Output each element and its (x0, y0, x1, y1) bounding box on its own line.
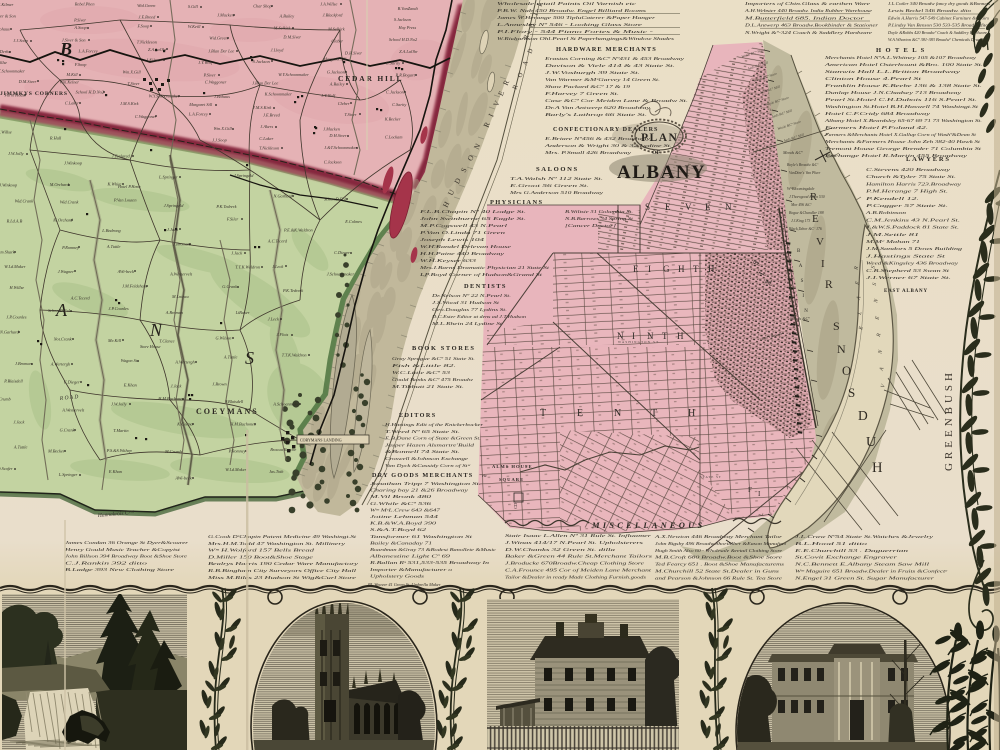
svg-text:P.Cagger 57 State St.: P.Cagger 57 State St. (864, 203, 948, 208)
svg-text:H.Hastings Edit of the Knicker: H.Hastings Edit of the Knickerbocker (384, 422, 484, 427)
svg-text:T: T (651, 408, 657, 419)
svg-text:Shaw Packard &Cº 17 & 19: Shaw Packard &Cº 17 & 19 (545, 84, 631, 89)
svg-text:Store House: Store House (140, 344, 161, 349)
svg-text:Rebel.Phen: Rebel.Phen (74, 1, 95, 6)
svg-text:J.Hastings State St: J.Hastings State St (866, 253, 947, 258)
svg-text:D.M.Siver: D.M.Siver (18, 79, 37, 84)
svg-text:[Cancer Doctor]: [Cancer Doctor] (565, 223, 616, 228)
svg-text:EAST ALBANY: EAST ALBANY (884, 289, 928, 294)
svg-text:F.Siler: F.Siler (226, 217, 239, 222)
svg-text:M.Tibbutt 21 State St.: M.Tibbutt 21 State St. (390, 384, 464, 389)
svg-text:Lewis Beckel 546 Broadw. dit: Lewis Beckel 546 Broadw. dito (886, 8, 972, 13)
svg-text:Cleber: Cleber (331, 39, 343, 44)
svg-text:A.C.Tecerd: A.C.Tecerd (267, 239, 288, 244)
svg-text:F.L.B.Chapin Nº 40 Lodge St.: F.L.B.Chapin Nº 40 Lodge St. (418, 209, 526, 214)
svg-text:D.Miller 150 Boot&Shoe Stage: D.Miller 150 Boot&Shoe Stage (206, 554, 313, 559)
svg-text:C.Dieger: C.Dieger (334, 250, 350, 255)
svg-text:J.E.Breed: J.E.Breed (263, 113, 281, 118)
svg-text:P.Romney: P.Romney (61, 245, 79, 250)
svg-text:K.Becker: K.Becker (384, 117, 401, 122)
svg-text:G.Cook DʳChapin Patent Medici: G.Cook DʳChapin Patent Medicine 49 Washi… (208, 534, 357, 539)
svg-text:J.Wagner: J.Wagner (58, 269, 75, 274)
svg-text:J.Y.Wolf: J.Y.Wolf (321, 93, 336, 98)
svg-text:C.J.Rankin 392 ditto: C.J.Rankin 392 ditto (65, 560, 149, 565)
svg-text:M.Churchill 52 State St.Deale: M.Churchill 52 State St.Dealer in Guns (653, 569, 779, 574)
svg-text:E: E (705, 202, 711, 212)
svg-text:F.Soop: F.Soop (137, 23, 151, 28)
svg-text:G.Crank: G.Crank (60, 427, 75, 432)
svg-text:P.K.Tedrerk: P.K.Tedrerk (215, 204, 236, 209)
svg-text:J.Leck: J.Leck (268, 317, 279, 322)
svg-text:Bealrys Harris 190 Cedar War: Bealrys Harris 190 Cedar Ware Manufactor… (208, 561, 358, 566)
svg-text:T.Siver: T.Siver (345, 112, 357, 117)
svg-text:W.H.Keyser 633: W.H.Keyser 633 (420, 258, 477, 263)
svg-text:M.Crumb: M.Crumb (0, 397, 11, 402)
svg-text:A.Soop: A.Soop (73, 25, 87, 30)
svg-text:Wᵐ H.Wolford 157 Bells Bread: Wᵐ H.Wolford 157 Bells Bread (208, 548, 316, 553)
svg-text:J.P.Counles: J.P.Counles (109, 306, 130, 311)
svg-text:A: A (799, 264, 803, 269)
svg-text:C.Sarity: C.Sarity (392, 102, 406, 107)
svg-text:C.Waggoner: C.Waggoner (205, 80, 227, 85)
svg-text:P.Siver: P.Siver (203, 72, 216, 77)
svg-text:Case &Cº Cor Meiden Lane &: Case &Cº Cor Meiden Lane & Broadw St. (545, 98, 688, 103)
svg-text:A.B.Robinson: A.B.Robinson (864, 210, 907, 215)
svg-text:P.S.&S.Withep: P.S.&S.Withep (106, 448, 133, 453)
svg-text:N: N (837, 342, 846, 356)
svg-text:Wagon St: Wagon St (121, 358, 138, 363)
svg-text:M.B.Croft 680 Broadw.Boot &Sho: M.B.Croft 680 Broadw.Boot &Shoe Store (653, 555, 782, 560)
svg-text:CONFECTIONARY DEALERS: CONFECTIONARY DEALERS (553, 127, 658, 133)
svg-text:Wᵐ Maguire 651 Broadw.Dealer i: Wᵐ Maguire 651 Broadw.Dealer in Fruits &… (795, 569, 948, 574)
svg-text:T.Nickleson: T.Nickleson (137, 39, 157, 44)
svg-text:P.Blaisdell: P.Blaisdell (224, 399, 244, 404)
svg-text:J.Blan Der Lee: J.Blan Der Lee (208, 49, 234, 54)
svg-text:ALMS HOUSE: ALMS HOUSE (492, 464, 533, 469)
svg-text:B.VanZandt: B.VanZandt (398, 6, 419, 11)
svg-text:J.S.Wood 31 Hudson St: J.S.Wood 31 Hudson St (432, 300, 500, 305)
svg-text:Margaret Sill: Margaret Sill (322, 57, 347, 62)
svg-text:J.Thorogood &Son 530: J.Thorogood &Son 530 (789, 195, 825, 199)
svg-text:J.J.Soop: J.J.Soop (13, 38, 28, 43)
svg-text:A.Wertergh: A.Wertergh (174, 360, 194, 365)
svg-text:S.Jackson: S.Jackson (394, 17, 411, 22)
svg-text:T.T.K.Waldron: T.T.K.Waldron (235, 265, 260, 270)
svg-text:Mends &Cº: Mends &Cº (789, 316, 810, 321)
svg-text:Van Warmer &MᶜGarvey 14 Green: Van Warmer &MᶜGarvey 14 Green St. (545, 77, 660, 82)
svg-text:R.Hall: R.Hall (49, 135, 62, 140)
svg-text:Davison & Viele 414 & 43 Sta: Davison & Viele 414 & 43 State St. (543, 63, 675, 68)
svg-text:I.P.Boyd Corner of Hudson&Gra: I.P.Boyd Corner of Hudson&Grand St (418, 272, 543, 277)
svg-text:Jonathan Tripp 7 Washington: Jonathan Tripp 7 Washington St. (370, 481, 481, 486)
svg-text:Albanestine Light Cº 69: Albanestine Light Cº 69 (368, 554, 451, 559)
svg-text:S: S (801, 279, 804, 284)
svg-text:Mends &Cº: Mends &Cº (782, 150, 803, 155)
svg-text:R: R (825, 279, 833, 291)
svg-text:A.Schoanmaker: A.Schoanmaker (272, 402, 300, 407)
svg-text:P.K.Tedrerk: P.K.Tedrerk (282, 288, 303, 293)
svg-text:C.Waggoner: C.Waggoner (135, 114, 157, 119)
svg-text:M.Orchard: M.Orchard (52, 218, 73, 223)
svg-text:C.Laker: C.Laker (65, 100, 79, 105)
svg-text:Mrs.I.Barns Dramatic Physicia: Mrs.I.Barns Dramatic Physician 21 State … (418, 265, 550, 270)
svg-text:J.M.S.Kirk: J.M.S.Kirk (253, 105, 272, 110)
svg-text:J.W.Jolly: J.W.Jolly (111, 401, 127, 406)
svg-text:W.Ld.Maker: W.Ld.Maker (225, 467, 246, 472)
svg-text:A.Tuttle: A.Tuttle (106, 244, 121, 249)
svg-text:H: H (688, 408, 695, 419)
svg-text:etc: etc (482, 473, 487, 478)
svg-text:P.Van Louten: P.Van Louten (113, 197, 137, 202)
svg-text:E.Colmes: E.Colmes (344, 219, 362, 224)
svg-text:J.Broman: J.Broman (15, 361, 32, 366)
svg-text:I: I (821, 258, 825, 270)
svg-text:J.Siver & Son: J.Siver & Son (62, 37, 86, 42)
svg-text:E.Khan: E.Khan (123, 383, 137, 388)
svg-text:J.Macken: J.Macken (323, 127, 340, 132)
svg-text:J.&T.Schoonmaker: J.&T.Schoonmaker (324, 145, 357, 150)
svg-text:Bailey &Canaday 71: Bailey &Canaday 71 (370, 540, 432, 545)
svg-text:N: N (149, 320, 163, 340)
svg-text:H.H.Paine 440 Broadway: H.H.Paine 440 Broadway (418, 251, 504, 256)
svg-text:Farmers &Merchants Hotel X.Ga: Farmers &Merchants Hotel X.Gallup Corn o… (824, 132, 977, 137)
svg-text:L.Springer: L.Springer (58, 472, 78, 477)
svg-text:T.T.K.Waldron: T.T.K.Waldron (282, 353, 307, 358)
svg-text:N.Wright &º-324 Coach & Sadd: N.Wright &º-324 Coach & Saddlery Hardwar… (743, 30, 872, 35)
svg-text:J.Bohaus: J.Bohaus (0, 27, 10, 32)
svg-text:T.Weed Nº 65 State St.: T.Weed Nº 65 State St. (385, 429, 460, 434)
svg-text:J.&T.Schoonmaker: J.&T.Schoonmaker (0, 69, 25, 74)
svg-text:Z.A.LaOhr: Z.A.LaOhr (148, 47, 167, 52)
svg-text:N.B.Barrows 34 Spring St: N.B.Barrows 34 Spring St (564, 216, 635, 221)
svg-text:W.A.Wharton &Cº 381-383 Broadw: W.A.Wharton &Cº 381-383 Broadwº Chemical… (888, 37, 987, 42)
svg-text:Edwin A.Harris 547-549 Cabine: Edwin A.Harris 547-549 Cabinet Furniture… (887, 15, 989, 20)
svg-text:L.Annesley Nº 546 - Looking: L.Annesley Nº 546 - Looking Glass Store (495, 22, 642, 27)
svg-text:P.Van O.Linda 71 Green: P.Van O.Linda 71 Green (418, 230, 506, 235)
svg-text:P.Siver: P.Siver (73, 18, 86, 23)
svg-text:Van Dyck &Cassidy Corn of Stʷ: Van Dyck &Cassidy Corn of Stʷ (385, 463, 470, 468)
svg-text:C.Sarity: C.Sarity (386, 61, 400, 66)
svg-text:DRY GOODS MERCHANTS: DRY GOODS MERCHANTS (372, 472, 473, 479)
svg-text:J.Brown: J.Brown (212, 382, 226, 387)
svg-text:G.Crank: G.Crank (222, 284, 237, 289)
svg-text:Wᵐ MᶜL.Crew 643 &647: Wᵐ MᶜL.Crew 643 &647 (370, 507, 441, 512)
svg-text:John Swinburne 65 Eagle St.: John Swinburne 65 Eagle St. (420, 216, 526, 221)
svg-text:S.Gill: S.Gill (188, 4, 199, 9)
svg-text:Hay Press: Hay Press (398, 25, 417, 30)
svg-text:E: E (633, 264, 639, 274)
svg-text:H: H (872, 460, 883, 476)
svg-text:S.Jackson: S.Jackson (253, 59, 270, 64)
svg-text:E.Groot 56 Green St.: E.Groot 56 Green St. (508, 183, 589, 188)
svg-text:D.W.Chanks 32 Green St. dill: D.W.Chanks 32 Green St. dilla (503, 547, 617, 552)
svg-text:M.Kill: M.Kill (66, 72, 79, 77)
svg-text:J.Broducke 670Broadw.Cheap Clo: J.Broducke 670Broadw.Cheap Clothing Stor… (505, 561, 644, 566)
svg-text:Wm.X.Gill: Wm.X.Gill (123, 70, 142, 75)
svg-text:J.Springeld: J.Springeld (164, 203, 185, 208)
svg-text:S: S (245, 348, 254, 368)
svg-text:T.Clance: T.Clance (159, 338, 174, 343)
svg-text:D.L.Antwerp 463 Broadw.Bookbin: D.L.Antwerp 463 Broadw.Bookbinder & Stat… (743, 23, 878, 28)
svg-text:AWi-beck: AWi-beck (117, 269, 134, 274)
svg-text:J.J.King 173: J.J.King 173 (791, 219, 810, 223)
svg-text:and Pearson &Johnson 66 Rule: and Pearson &Johnson 66 Rule St. Tea Sto… (655, 575, 782, 580)
svg-text:Char Shop: Char Shop (253, 4, 272, 9)
svg-text:M.Becker: M.Becker (47, 449, 65, 454)
svg-text:H.M.Buchones: H.M.Buchones (157, 396, 184, 401)
svg-text:School H.D.No2: School H.D.No2 (76, 89, 105, 94)
svg-text:D.H.Siver: D.H.Siver (344, 51, 363, 56)
svg-text:Hotel C.F.Cridy 684 Broadway: Hotel C.F.Cridy 684 Broadway (823, 111, 930, 116)
svg-text:M.Orchard: M.Orchard (49, 182, 70, 187)
svg-text:R.Ld.A.B: R.Ld.A.B (6, 219, 23, 224)
svg-text:M.Selkirk: M.Selkirk (273, 26, 291, 31)
svg-text:G.Wilson: G.Wilson (216, 336, 232, 341)
svg-text:Not.Crank: Not.Crank (53, 336, 72, 341)
svg-text:K.B.&W.A.Boyd 390: K.B.&W.A.Boyd 390 (368, 521, 437, 526)
svg-text:L.Bndrong: L.Bndrong (101, 228, 121, 233)
svg-text:J.Kilmer: J.Kilmer (146, 58, 161, 63)
svg-text:T.Siver: T.Siver (128, 81, 140, 86)
svg-text:B.Ladge 393 New Clothing S: B.Ladge 393 New Clothing Store (65, 567, 174, 572)
svg-text:M.Vil Bronk 480: M.Vil Bronk 480 (368, 494, 433, 499)
svg-text:C.Lockam: C.Lockam (385, 135, 403, 140)
svg-text:ALBANY: ALBANY (617, 162, 706, 183)
svg-text:C.Jackson: C.Jackson (386, 89, 404, 94)
svg-text:T: T (662, 331, 668, 341)
svg-text:Joseph Lewis 104: Joseph Lewis 104 (420, 237, 485, 242)
svg-text:M.Butterfield 685. Indian D: M.Butterfield 685. Indian Doctor (743, 15, 865, 20)
svg-text:C.M.Jenkins 43 N.Pearl St.: C.M.Jenkins 43 N.Pearl St. (866, 217, 960, 222)
svg-text:H.Willse: H.Willse (0, 130, 12, 135)
svg-text:Me.Kill: Me.Kill (107, 338, 122, 343)
svg-text:Washington St.Hotel B.H.Hasw: Washington St.Hotel B.H.Haswell 74 Washi… (825, 104, 979, 109)
svg-text:D: D (858, 408, 868, 423)
svg-text:COEYMANS: COEYMANS (196, 407, 259, 416)
svg-text:J.P.Counles: J.P.Counles (6, 314, 27, 319)
svg-text:T.Nickleson: T.Nickleson (259, 145, 279, 150)
svg-text:STATE ST: STATE ST (700, 475, 722, 479)
svg-text:D.C.Ester Editor at dens ad J.: D.C.Ester Editor at dens ad J.T.Hudson (431, 314, 527, 319)
svg-text:Cleber: Cleber (338, 101, 350, 106)
svg-text:Henry Gould Music Teacher &C: Henry Gould Music Teacher &Copyist (63, 547, 181, 552)
svg-text:L.A.Forcey: L.A.Forcey (78, 48, 98, 53)
svg-text:E.E.Churchill 53 . Daguerri: E.E.Churchill 53 . Daguerrian (793, 548, 910, 553)
svg-text:J.Winkoop: J.Winkoop (64, 160, 83, 165)
svg-text:K.Colma: K.Colma (176, 421, 192, 426)
svg-text:Jotine Lehman 544: Jotine Lehman 544 (370, 514, 440, 519)
svg-text:K.White: K.White (107, 182, 122, 187)
svg-text:Tailor &Dealer in ready Made C: Tailor &Dealer in ready Made Clothing Fu… (505, 574, 646, 579)
svg-text:Charing bay 21 &26 Broadway: Charing bay 21 &26 Broadway (370, 488, 468, 493)
svg-text:F.Harvey 7 Green St.: F.Harvey 7 Green St. (543, 91, 619, 96)
svg-text:Importer &Manufacturer o: Importer &Manufacturer o (368, 567, 453, 572)
svg-text:V: V (816, 236, 824, 248)
svg-text:M.Mᶜ Mahan 71: M.Mᶜ Mahan 71 (864, 239, 920, 244)
svg-text:T.A.Walsh Nº 112 State St.: T.A.Walsh Nº 112 State St. (510, 176, 603, 181)
svg-text:J.Jack: J.Jack (14, 420, 25, 425)
svg-text:Pearl St.Hotel C.H.Dubois 11: Pearl St.Hotel C.H.Dubois 116 S.Pearl St… (823, 97, 977, 102)
svg-text:A.Wentervelt: A.Wentervelt (169, 272, 193, 277)
svg-text:M.Lnteau: M.Lnteau (171, 294, 189, 299)
svg-text:S: S (645, 202, 650, 212)
svg-text:Tansformer 61 Washington St: Tansformer 61 Washington St (370, 534, 474, 539)
svg-text:J.Lloyd: J.Lloyd (271, 48, 285, 53)
svg-text:Franklin House K.Beebe 136 &: Franklin House K.Beebe 136 & 138 State S… (823, 83, 982, 88)
svg-text:J.Jack: J.Jack (167, 227, 178, 232)
svg-text:B.Wiltsie 31 Columbia St.: B.Wiltsie 31 Columbia St. (565, 209, 633, 214)
svg-text:K.Schoonmaker: K.Schoonmaker (264, 91, 293, 96)
svg-text:L.A.Forcey: L.A.Forcey (188, 112, 208, 117)
svg-text:WASHINGTON ST: WASHINGTON ST (618, 340, 659, 344)
svg-text:L.Springer: L.Springer (158, 174, 178, 179)
svg-text:American Hotel Osterhount &B: American Hotel Osterhount &Bro. 100 Stat… (823, 62, 983, 67)
svg-text:A.C.Tecerd: A.C.Tecerd (70, 295, 91, 300)
svg-text:J.Y.Wolf: J.Y.Wolf (198, 60, 213, 65)
svg-text:A.Bailey: A.Bailey (279, 14, 295, 19)
svg-text:P.Kendell 12.: P.Kendell 12. (864, 196, 919, 201)
svg-text:H.Willse: H.Willse (9, 285, 25, 290)
svg-text:Croswell &Johnson Exchange: Croswell &Johnson Exchange (385, 456, 468, 461)
svg-text:LAWYERS: LAWYERS (906, 156, 951, 163)
svg-text:Dr.A Van Antwerp 620 Broadway: Dr.A Van Antwerp 620 Broadway (543, 105, 650, 110)
svg-text:G: G (663, 264, 670, 274)
svg-text:Dunlap House J.N.Chadsey 713: Dunlap House J.N.Chadsey 713 Broadway (823, 90, 961, 95)
svg-text:J.A.Willse: J.A.Willse (0, 60, 7, 65)
svg-text:Erastus Corning &Cº Nº431 & 45: Erastus Corning &Cº Nº431 & 453 Broadway (543, 56, 684, 61)
svg-text:J.W.Jolly: J.W.Jolly (8, 151, 24, 156)
svg-text:D.H.Siver: D.H.Siver (328, 133, 347, 138)
svg-text:WᵐBloomingdale: WᵐBloomingdale (787, 186, 815, 191)
svg-text:J.M.Sandors 5 Dows Building: J.M.Sandors 5 Dows Building (866, 246, 963, 251)
svg-text:Church &Tyler 75 State St.: Church &Tyler 75 State St. (866, 174, 956, 179)
svg-text:Mrs.H.M.Todd 47 Washington St.: Mrs.H.M.Todd 47 Washington St. Millinery (206, 541, 345, 546)
svg-text:James Condan 36 Orange St Dy: James Condan 36 Orange St Dyer&Scourer (65, 540, 188, 545)
svg-text:V: V (685, 202, 692, 212)
svg-text:A.Wentervelt: A.Wentervelt (61, 408, 85, 413)
svg-text:J.Winkoop: J.Winkoop (0, 183, 18, 188)
svg-text:C.Stevens 420 Broadway: C.Stevens 420 Broadway (866, 167, 952, 172)
svg-text:PHYSICIANS: PHYSICIANS (490, 199, 543, 206)
svg-text:J.A.Willse: J.A.Willse (320, 2, 337, 7)
svg-text:EDITORS: EDITORS (399, 412, 437, 419)
svg-text:Wid.Green: Wid.Green (209, 36, 227, 41)
svg-text:Bracua Rasche: Bracua Rasche (270, 447, 296, 452)
svg-text:C.A.Frounce 495 Cor of Meid: C.A.Frounce 495 Cor of Meiden Lane Merch… (505, 568, 652, 573)
svg-text:Gould Banks &Cº 475 Broadw: Gould Banks &Cº 475 Broadw (392, 377, 473, 382)
svg-text:P.M.Herange 7 High St.: P.M.Herange 7 High St. (864, 189, 948, 194)
svg-text:Clinton House 4.Pearl St: Clinton House 4.Pearl St (825, 76, 923, 81)
svg-text:J.M.Settle 81: J.M.Settle 81 (866, 232, 919, 237)
svg-text:Mrs. P.Small 426 Broadway: Mrs. P.Small 426 Broadway (543, 150, 631, 155)
svg-text:Weed &Kingsley 436 Broadway: Weed &Kingsley 436 Broadway (866, 261, 960, 266)
svg-text:J.L.Craw Nº54 State St.Watche: J.L.Craw Nº54 State St.Watches &Jewelry (795, 534, 933, 539)
svg-text:J.I.Werner 67 State St.: J.I.Werner 67 State St. (866, 275, 951, 280)
svg-text:N.C.Bennett E.Albany Steam: N.C.Bennett E.Albany Steam Saw Mill (793, 562, 931, 567)
svg-text:CD: CD (513, 502, 518, 509)
svg-text:Schon.D.Fol: Schon.D.Fol (324, 197, 347, 202)
svg-text:I: I (648, 264, 651, 274)
svg-text:Wid.Green: Wid.Green (137, 3, 155, 8)
svg-text:P.Blaisdell: P.Blaisdell (3, 379, 23, 384)
svg-text:Merchants &Farmers House John: Merchants &Farmers House John Zeh 382-40… (823, 139, 981, 144)
svg-text:Z.A.LaOhr: Z.A.LaOhr (399, 49, 418, 54)
svg-text:C.Jackson: C.Jackson (324, 160, 342, 165)
svg-text:M.Crumb: M.Crumb (164, 449, 182, 454)
svg-text:R.R.Bogart: R.R.Bogart (395, 72, 416, 77)
svg-text:J.Winas 414/17 N.Pearl St. Up: J.Winas 414/17 N.Pearl St. Upholsterers (505, 540, 644, 545)
svg-text:J.Siver & Son: J.Siver & Son (0, 13, 16, 18)
svg-text:A.Tuttle: A.Tuttle (13, 444, 28, 449)
svg-text:Schon.D.Fol: Schon.D.Fol (48, 308, 71, 313)
svg-text:J.Leck: J.Leck (272, 264, 283, 269)
svg-text:W.Keill: W.Keill (188, 24, 201, 29)
svg-text:Albany Hotel X.Beardsley 65-6: Albany Hotel X.Beardsley 65-67 69 71 73 … (823, 118, 982, 123)
svg-text:W.H.Randel Delevan House: W.H.Randel Delevan House (420, 244, 511, 249)
svg-text:H.M.Buchones: H.M.Buchones (229, 421, 256, 426)
svg-text:W.C.Little &Cº 53: W.C.Little &Cº 53 (392, 370, 451, 375)
svg-text:J.Bohaus: J.Bohaus (214, 94, 230, 99)
svg-text:Importers of Chin.Glass & eart: Importers of Chin.Glass & earthen Ware (743, 1, 870, 6)
svg-text:S: S (833, 319, 840, 333)
svg-text:Stair Isaac L.Allen Nº 31 Ru: Stair Isaac L.Allen Nº 31 Rule St. Influ… (505, 533, 652, 538)
svg-text:BOOK STORES: BOOK STORES (412, 345, 475, 352)
svg-text:B.L.Hood 51 ditto: B.L.Hood 51 ditto (795, 541, 869, 546)
svg-text:J.M.S.Kirk: J.M.S.Kirk (120, 101, 139, 106)
svg-text:Margaret Sill: Margaret Sill (188, 102, 213, 107)
svg-text:M.Selkirk: M.Selkirk (327, 27, 345, 32)
svg-text:W.Ld.Maker: W.Ld.Maker (4, 264, 25, 269)
svg-text:Jas.Toth: Jas.Toth (269, 469, 283, 474)
svg-text:SQUARE: SQUARE (499, 477, 524, 482)
svg-text:E: E (577, 408, 583, 419)
svg-text:Wm.X.Gill: Wm.X.Gill (214, 126, 233, 131)
svg-text:AWi-beck: AWi-beck (174, 475, 191, 480)
svg-text:&Bonnell 74 State St.: &Bonnell 74 State St. (385, 449, 460, 454)
svg-text:N.Garhard: N.Garhard (0, 330, 20, 335)
svg-text:H: H (708, 264, 715, 274)
svg-text:A.Broman: A.Broman (165, 310, 183, 315)
svg-text:Tremont House George Brender: Tremont House George Brender 71 Columbia… (825, 146, 982, 151)
svg-text:N.Garhard: N.Garhard (273, 194, 294, 199)
svg-text:Miss M.Riles 23 Hudson St Wi: Miss M.Riles 23 Hudson St Wig&Curl Store (206, 575, 356, 580)
svg-text:Fish &Little 82.: Fish &Little 82. (390, 363, 456, 368)
svg-text:G.While &Cº 536: G.While &Cº 536 (370, 501, 433, 506)
svg-text:Bogue &Chandler 188: Bogue &Chandler 188 (789, 211, 824, 215)
svg-text:H O T E L S: H O T E L S (876, 47, 926, 54)
svg-text:T: T (693, 264, 699, 274)
svg-text:O: O (842, 364, 851, 378)
svg-text:Hamilton Harris 723.Broadway: Hamilton Harris 723.Broadway (864, 181, 962, 186)
svg-text:F.Soop: F.Soop (74, 62, 88, 67)
svg-text:Dr.Nelson Nº 22 N.Pearl St.: Dr.Nelson Nº 22 N.Pearl St. (430, 293, 511, 298)
svg-text:CEDAR HILL: CEDAR HILL (338, 74, 403, 83)
svg-text:P.I.Flory - 544 Piano Fort: P.I.Flory - 544 Piano Fortes & Music - (495, 29, 654, 34)
svg-text:W.Richardson Ohl.Pearl St Pape: W.Richardson Ohl.Pearl St Paperhangings&… (497, 36, 674, 41)
svg-text:J.M.Feldeham: J.M.Feldeham (122, 284, 147, 289)
svg-text:Ted Fearcy 651 . Boot &Shoe: Ted Fearcy 651 . Boot &Shoe Manufacturem… (655, 562, 784, 567)
svg-text:C.B.Shepherd 53 Swan St: C.B.Shepherd 53 Swan St (866, 268, 950, 273)
svg-text:St.Covit Exchange Engraver: St.Covit Exchange Engraver (795, 555, 898, 560)
svg-text:W.Y.Schoonmaker: W.Y.Schoonmaker (149, 94, 180, 99)
svg-text:N.Engel 31 Green St. Sugar Ma: N.Engel 31 Green St. Sugar Manufacturer (793, 575, 934, 580)
svg-text:Gray Sprague &Cº 51 State St.: Gray Sprague &Cº 51 State St. (392, 356, 475, 361)
svg-text:P.B.W. Nab 450 Broadw. Engel B: P.B.W. Nab 450 Broadw. Engel Billiard Ro… (495, 8, 646, 13)
svg-text:Wid.Crank: Wid.Crank (60, 200, 79, 205)
svg-text:D.M.Siver: D.M.Siver (282, 35, 301, 40)
svg-text:N: N (725, 202, 732, 212)
svg-text:J.Tenlared: J.Tenlared (112, 154, 131, 159)
